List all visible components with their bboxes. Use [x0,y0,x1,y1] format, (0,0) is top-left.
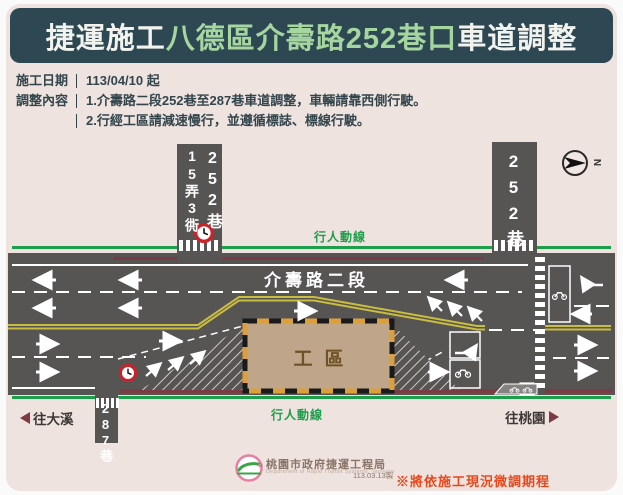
side-road-label-287: 287巷 [99,401,112,463]
info-content-line1: 1.介壽路二段252巷至287巷車道調整，車輛請靠西側行駛。 [86,91,608,111]
metro-logo-icon [233,452,265,484]
title-bar: 捷運施工八德區介壽路252巷口車道調整 [10,8,613,63]
info-date-value: 113/04/10 起 [86,71,608,91]
direction-west-label: 往大溪 [33,408,74,428]
side-road-label-252-east: 252巷 [505,152,522,254]
clock-sign-icon [119,364,137,382]
info-row-date: 施工日期 113/04/10 起 [16,71,608,91]
info-content-label: 調整內容 [16,91,76,111]
pedestrian-path-label-bottom: 行人動線 [271,406,323,423]
schedule-note: ※將依施工現況微調期程 [396,471,550,490]
title-suffix: 車道調整 [457,15,577,57]
direction-east: 往桃園 [505,407,559,427]
made-date: 113.03.13製 [353,470,393,481]
info-content-line2: 2.行經工區請減速慢行，並遵循標誌、標線行駛。 [86,111,608,131]
info-row-content-1: 調整內容 1.介壽路二段252巷至287巷車道調整，車輛請靠西側行駛。 [16,91,608,111]
title-highlight: 八德區介壽路252巷口 [166,15,457,57]
main-road-label: 介壽路二段 [264,266,369,291]
divider [76,114,86,128]
divider [76,74,86,88]
direction-east-label: 往桃園 [505,407,546,427]
title-prefix: 捷運施工 [46,15,166,57]
direction-west: 往大溪 [20,408,74,428]
pedestrian-path-label-top: 行人動線 [314,228,366,245]
right-arrow-icon [549,411,559,423]
compass-north-label: N [591,159,602,166]
traffic-diagram: 15弄3衖 252巷 252巷 287巷 介壽路二段 行人動線 行人動線 工區 … [8,138,615,445]
diagram-canvas [8,138,615,445]
side-road-label-15alley: 15弄3衖 [185,148,199,234]
side-road-label-252-west: 252巷 [204,150,220,233]
info-date-label: 施工日期 [16,71,76,91]
work-zone-label: 工區 [245,344,392,371]
info-block: 施工日期 113/04/10 起 調整內容 1.介壽路二段252巷至287巷車道… [16,71,608,131]
divider [76,94,86,108]
info-row-content-2: 2.行經工區請減速慢行，並遵循標誌、標線行駛。 [16,111,608,131]
compass-icon [563,151,587,175]
left-arrow-icon [20,412,30,424]
crosswalk-east [535,257,545,388]
